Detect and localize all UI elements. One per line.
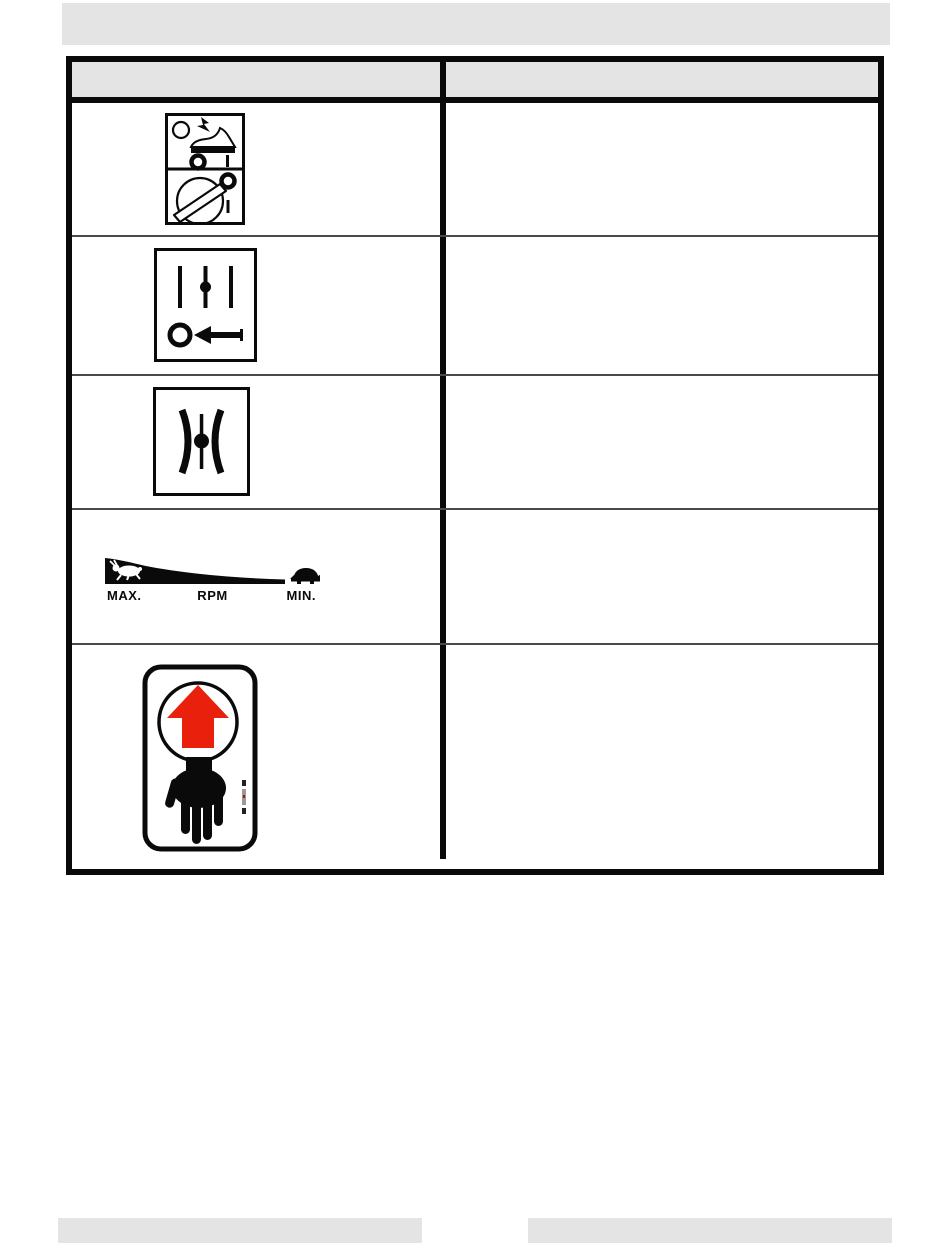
table-row [72, 103, 878, 235]
choke-icon [153, 387, 250, 496]
turtle-glyph [290, 568, 320, 584]
symbol-cell [72, 645, 446, 859]
table-row [72, 374, 878, 508]
description-cell [446, 645, 878, 859]
keep-hands-away-warning-icon [140, 662, 260, 854]
top-redacted-heading-bar [62, 3, 890, 45]
table-header-symbol-column [72, 62, 446, 97]
description-cell [446, 237, 878, 374]
throttle-rpm-label: RPM [197, 588, 227, 603]
table-row: MAX. RPM MIN. [72, 508, 878, 643]
manual-page: MAX. RPM MIN. [0, 0, 950, 1254]
symbol-cell [72, 376, 446, 508]
description-cell [446, 510, 878, 643]
table-header-description-column [446, 62, 878, 97]
description-cell [446, 103, 878, 235]
primer-press-icon [154, 248, 257, 362]
throttle-min-label: MIN. [287, 588, 316, 603]
throttle-max-label: MAX. [107, 588, 142, 603]
symbol-cell [72, 103, 446, 235]
bottom-right-redacted-bar [528, 1218, 892, 1243]
table-row [72, 643, 878, 859]
label-part-code-mark [242, 780, 246, 814]
description-cell [446, 376, 878, 508]
throttle-scale-labels: MAX. RPM MIN. [105, 588, 320, 604]
engine-switch-key-icon [165, 113, 245, 225]
bottom-left-redacted-bar [58, 1218, 422, 1243]
symbol-cell [72, 237, 446, 374]
table-header-row [72, 62, 878, 103]
symbol-cell: MAX. RPM MIN. [72, 510, 446, 643]
symbols-table: MAX. RPM MIN. [66, 56, 884, 875]
table-row [72, 235, 878, 374]
throttle-fast-slow-icon [105, 557, 320, 585]
